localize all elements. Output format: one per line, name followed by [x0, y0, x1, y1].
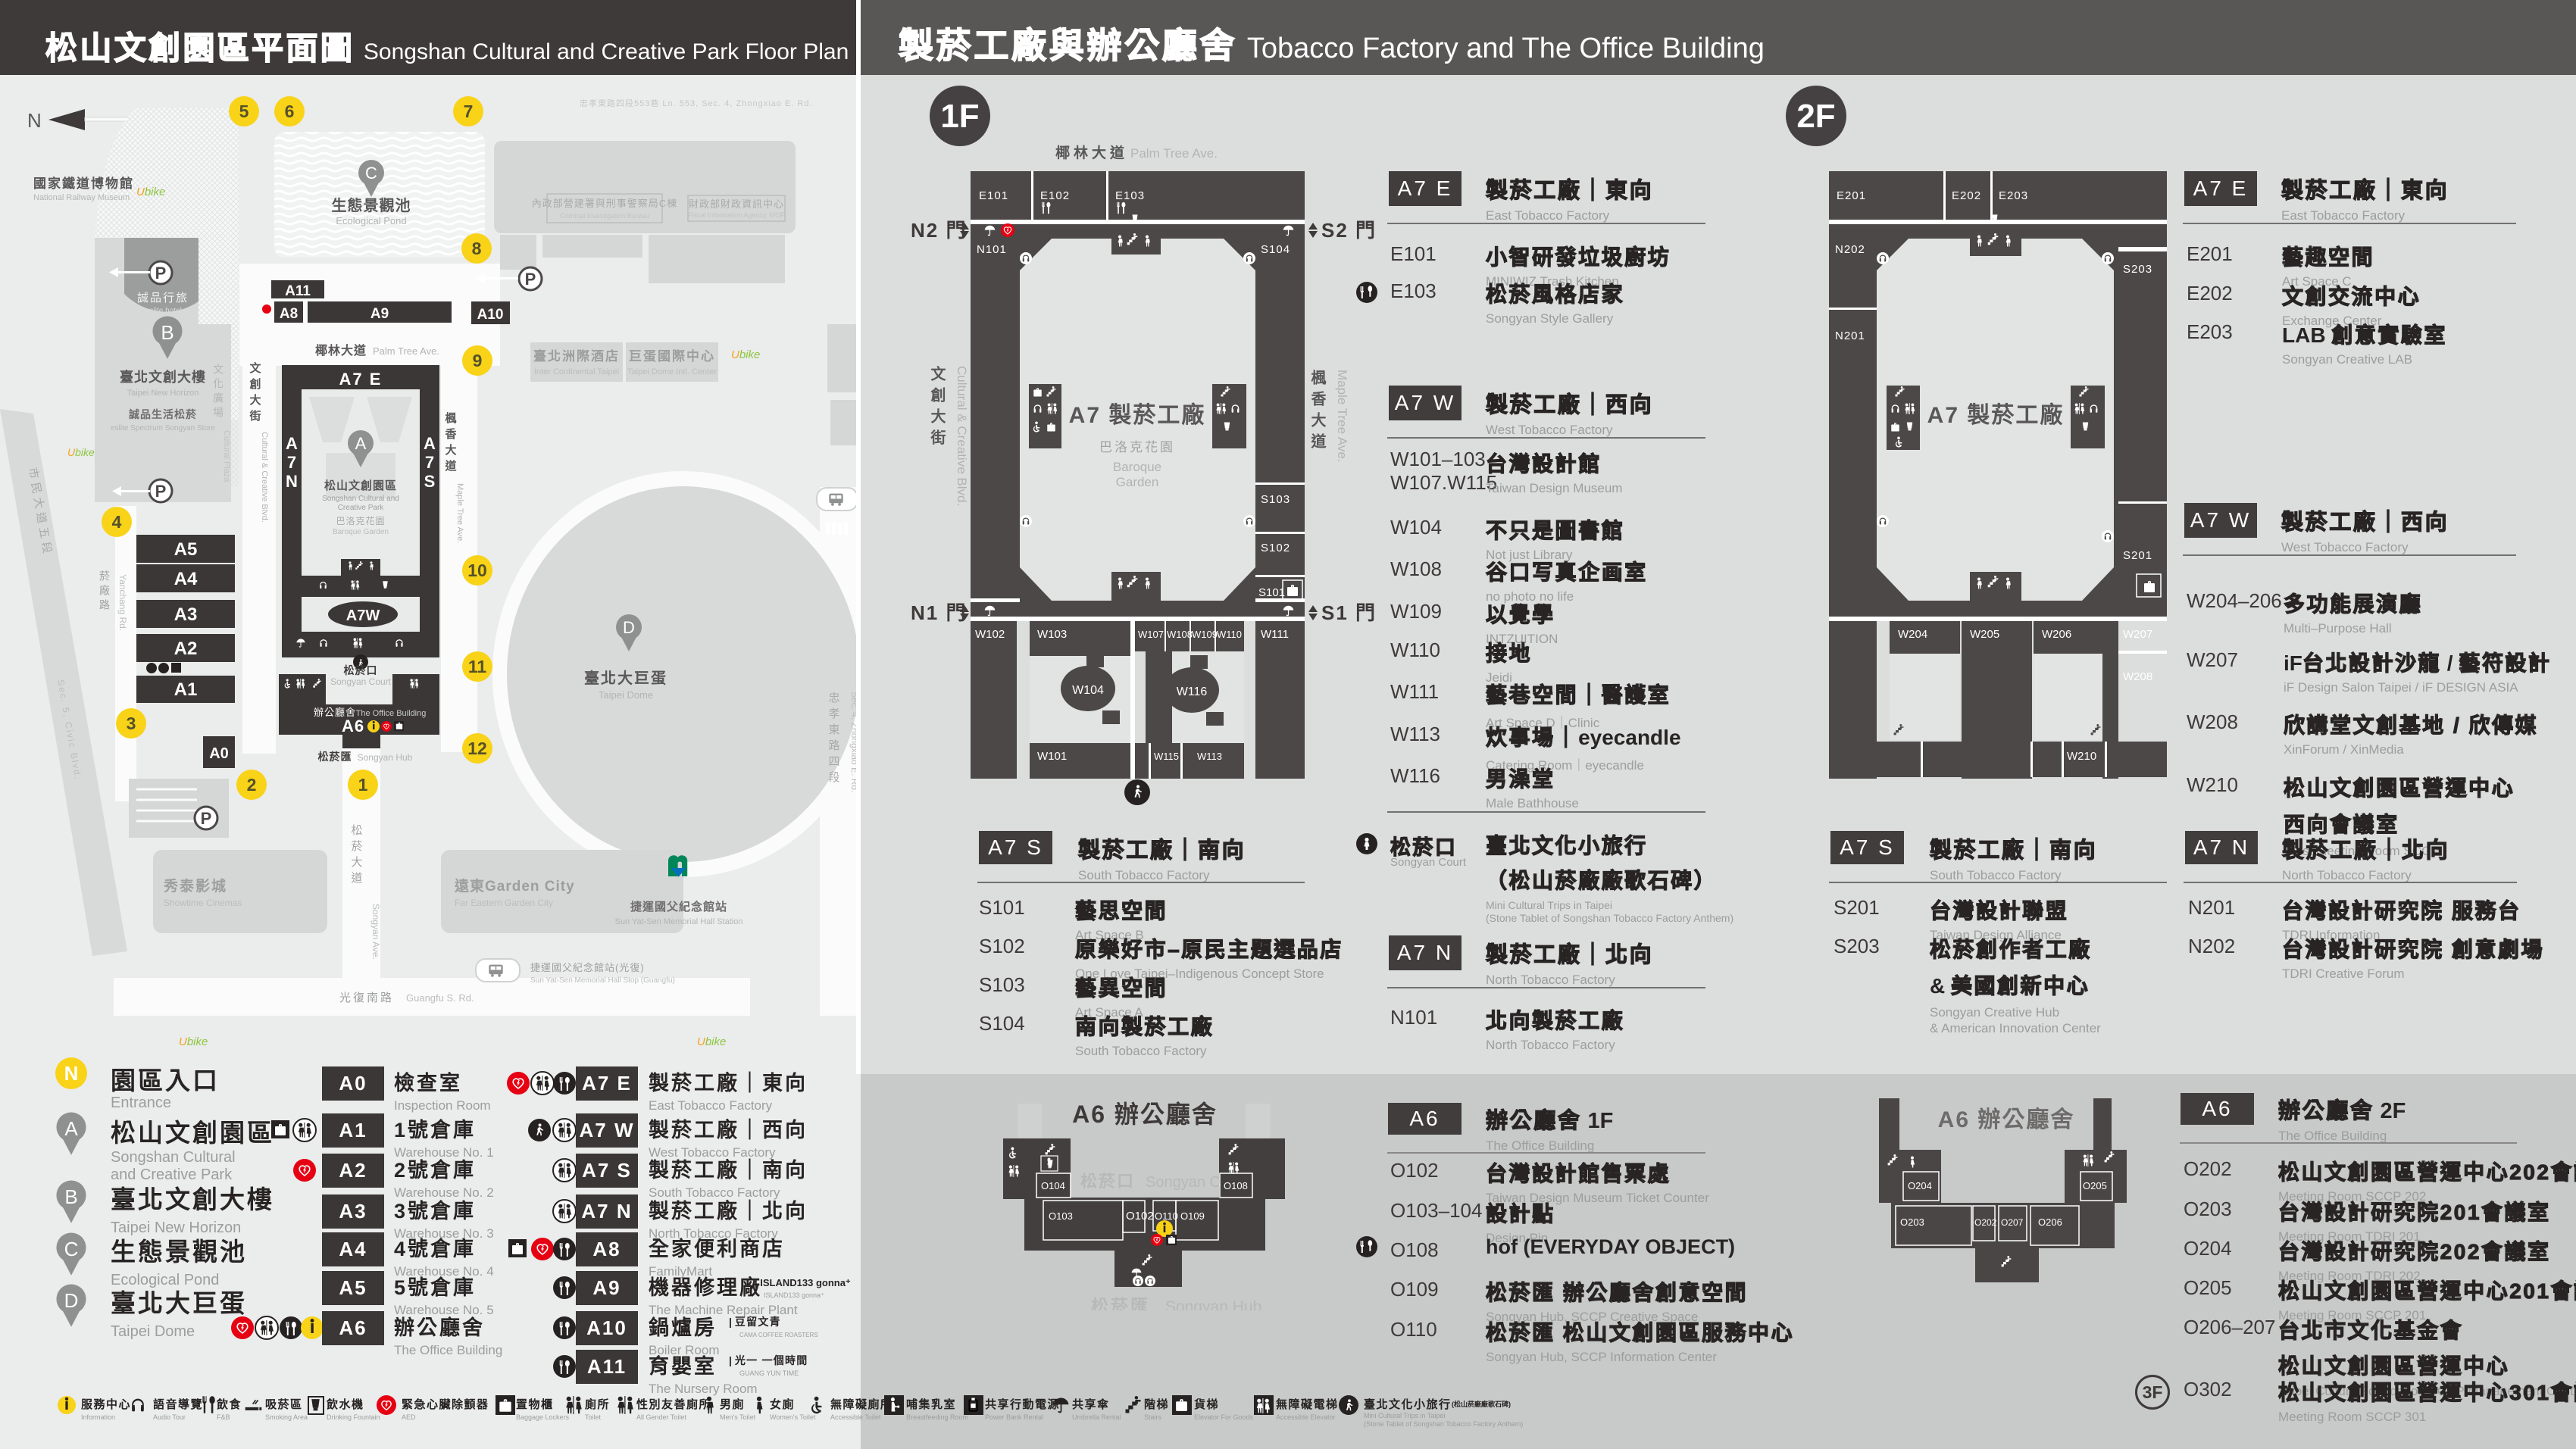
svg-text:O108: O108 — [1224, 1180, 1248, 1191]
svg-text:O109: O109 — [1180, 1210, 1205, 1222]
svg-text:W101: W101 — [1037, 750, 1067, 763]
svg-text:All Gender Toilet: All Gender Toilet — [636, 1413, 686, 1421]
svg-text:(Stone Tablet of Songshan Toba: (Stone Tablet of Songshan Tobacco Factor… — [1364, 1420, 1523, 1428]
svg-text:製菸工廠｜西向: 製菸工廠｜西向 — [649, 1118, 808, 1141]
svg-text:Umbrella Rental: Umbrella Rental — [1072, 1413, 1121, 1421]
svg-text:S101: S101 — [1258, 586, 1285, 599]
svg-text:S103: S103 — [1261, 493, 1290, 506]
svg-text:無障礙廁所: 無障礙廁所 — [830, 1397, 893, 1411]
svg-text:A8: A8 — [592, 1238, 621, 1260]
svg-text:E102: E102 — [1040, 189, 1070, 202]
svg-text:巴洛克花園: 巴洛克花園 — [1099, 440, 1175, 454]
svg-text:5號倉庫: 5號倉庫 — [394, 1276, 476, 1299]
svg-text:CAMA COFFEE ROASTERS: CAMA COFFEE ROASTERS — [739, 1332, 818, 1338]
svg-text:Baroque: Baroque — [1113, 460, 1161, 474]
svg-text:E202: E202 — [1952, 189, 1981, 202]
svg-text:W206: W206 — [2042, 628, 2071, 641]
svg-text:2號倉庫: 2號倉庫 — [394, 1158, 476, 1182]
svg-text:1號倉庫: 1號倉庫 — [394, 1118, 476, 1141]
svg-text:W107: W107 — [1138, 629, 1164, 640]
svg-text:O102: O102 — [1126, 1210, 1154, 1223]
svg-text:A2: A2 — [339, 1159, 367, 1182]
svg-text:| 光一 一個時間: | 光一 一個時間 — [729, 1354, 808, 1366]
svg-text:男廁: 男廁 — [720, 1397, 745, 1411]
svg-text:O205: O205 — [2083, 1180, 2107, 1191]
svg-text:松菸匯: 松菸匯 — [1091, 1296, 1150, 1310]
svg-text:South Tobacco Factory: South Tobacco Factory — [649, 1185, 780, 1200]
svg-text:W210: W210 — [2067, 750, 2096, 763]
svg-text:4號倉庫: 4號倉庫 — [394, 1237, 476, 1260]
svg-text:Information: Information — [81, 1413, 115, 1421]
svg-text:B: B — [64, 1185, 77, 1208]
svg-text:園區入口: 園區入口 — [111, 1066, 220, 1095]
svg-text:A0: A0 — [339, 1072, 367, 1095]
svg-text:松菸口: 松菸口 — [1080, 1172, 1135, 1191]
svg-text:廁所: 廁所 — [585, 1397, 610, 1411]
svg-text:Audio Tour: Audio Tour — [153, 1413, 186, 1421]
svg-text:W113: W113 — [1197, 751, 1222, 762]
svg-text:A4: A4 — [339, 1238, 367, 1260]
svg-text:A1: A1 — [339, 1119, 367, 1141]
svg-text:置物櫃: 置物櫃 — [516, 1397, 554, 1411]
svg-text:W108: W108 — [1167, 629, 1193, 640]
svg-text:Warehouse No. 2: Warehouse No. 2 — [394, 1185, 494, 1200]
svg-text:S2 門: S2 門 — [1321, 219, 1377, 242]
svg-text:E201: E201 — [1837, 189, 1866, 202]
svg-text:N1 門: N1 門 — [911, 601, 967, 624]
svg-text:C: C — [64, 1238, 79, 1260]
svg-text:臺北文創大樓: 臺北文創大樓 — [111, 1185, 274, 1213]
svg-text:Accessible Toilet: Accessible Toilet — [830, 1413, 881, 1421]
svg-text:哺集乳室: 哺集乳室 — [906, 1397, 956, 1411]
svg-text:吸菸區: 吸菸區 — [265, 1397, 303, 1411]
svg-text:ISLAND133 gonna⁺: ISLAND133 gonna⁺ — [764, 1291, 824, 1299]
svg-text:A9: A9 — [592, 1276, 621, 1299]
svg-text:S102: S102 — [1261, 542, 1290, 554]
svg-text:(松山菸廠廠歌石碑): (松山菸廠廠歌石碑) — [1452, 1400, 1511, 1408]
svg-text:Ecological Pond: Ecological Pond — [111, 1272, 219, 1288]
svg-text:West Tobacco Factory: West Tobacco Factory — [649, 1145, 776, 1160]
svg-text:S1 門: S1 門 — [1321, 601, 1377, 624]
svg-text:W204: W204 — [1898, 628, 1927, 641]
svg-text:鍋爐房: 鍋爐房 — [649, 1316, 717, 1339]
svg-text:O207: O207 — [2001, 1217, 2024, 1228]
svg-text:S201: S201 — [2123, 549, 2152, 562]
svg-text:Songshan Cultural: Songshan Cultural — [111, 1149, 236, 1166]
svg-text:飲食: 飲食 — [216, 1397, 242, 1411]
svg-text:全家便利商店: 全家便利商店 — [649, 1237, 785, 1260]
svg-text:W115: W115 — [1154, 751, 1179, 762]
svg-text:Entrance: Entrance — [111, 1095, 171, 1111]
svg-text:Smoking Area: Smoking Area — [265, 1413, 308, 1421]
svg-text:臺北文化小旅行: 臺北文化小旅行 — [1364, 1397, 1452, 1411]
svg-text:Power Bank Rental: Power Bank Rental — [985, 1413, 1043, 1421]
svg-text:A7 製菸工廠: A7 製菸工廠 — [1069, 402, 1206, 428]
svg-text:W109: W109 — [1192, 629, 1218, 640]
svg-text:機器修理廠: 機器修理廠 — [649, 1276, 762, 1299]
svg-text:椰林大道: 椰林大道 — [1055, 144, 1128, 161]
svg-text:N101: N101 — [977, 243, 1007, 256]
svg-text:辦公廳舍: 辦公廳舍 — [394, 1316, 485, 1339]
svg-text:O203: O203 — [1900, 1216, 1924, 1228]
svg-text:Inspection Room: Inspection Room — [394, 1098, 491, 1113]
svg-text:製菸工廠｜北向: 製菸工廠｜北向 — [649, 1199, 808, 1223]
svg-text:W103: W103 — [1037, 628, 1067, 641]
svg-text:O202: O202 — [1974, 1217, 1997, 1228]
svg-text:W110: W110 — [1217, 629, 1242, 640]
svg-text:D: D — [64, 1289, 79, 1312]
svg-text:A7 製菸工廠: A7 製菸工廠 — [1927, 402, 2065, 428]
svg-text:A6: A6 — [339, 1316, 367, 1339]
svg-text:松山文創園區: 松山文創園區 — [111, 1119, 274, 1147]
svg-text:Elevator For Goods: Elevator For Goods — [1194, 1413, 1254, 1421]
svg-text:Taipei Dome: Taipei Dome — [111, 1323, 195, 1340]
svg-text:A3: A3 — [339, 1200, 367, 1223]
svg-text:E203: E203 — [1999, 189, 2028, 202]
svg-text:The Office Building: The Office Building — [394, 1343, 502, 1357]
svg-text:A10: A10 — [586, 1316, 627, 1339]
svg-text:W116: W116 — [1177, 685, 1208, 698]
svg-text:GUANG YUN TIME: GUANG YUN TIME — [739, 1369, 799, 1377]
svg-text:Cultural & Creative Blvd.: Cultural & Creative Blvd. — [955, 366, 969, 506]
svg-text:O103: O103 — [1049, 1210, 1073, 1222]
svg-text:貨梯: 貨梯 — [1194, 1397, 1219, 1411]
svg-text:A6 辦公廳舍: A6 辦公廳舍 — [1938, 1107, 2075, 1132]
svg-text:E103: E103 — [1115, 189, 1145, 202]
svg-text:F&B: F&B — [217, 1413, 230, 1421]
svg-text:3號倉庫: 3號倉庫 — [394, 1199, 476, 1223]
svg-text:無障礙電梯: 無障礙電梯 — [1276, 1397, 1339, 1411]
svg-text:Warehouse No. 5: Warehouse No. 5 — [394, 1303, 494, 1317]
svg-text:W102: W102 — [975, 628, 1005, 641]
svg-text:S104: S104 — [1261, 243, 1290, 256]
svg-text:緊急心臟除顫器: 緊急心臟除顫器 — [402, 1397, 489, 1411]
svg-text:E101: E101 — [979, 189, 1008, 202]
svg-text:Taipei New Horizon: Taipei New Horizon — [111, 1219, 241, 1236]
svg-text:A6 辦公廳舍: A6 辦公廳舍 — [1072, 1101, 1218, 1128]
svg-text:檢查室: 檢查室 — [394, 1071, 462, 1095]
svg-text:共享行動電源: 共享行動電源 — [985, 1397, 1060, 1411]
svg-text:Maple Tree Ave.: Maple Tree Ave. — [1335, 370, 1349, 463]
svg-text:W111: W111 — [1261, 628, 1289, 641]
svg-text:生態景觀池: 生態景觀池 — [111, 1238, 247, 1266]
svg-text:Women's Toilet: Women's Toilet — [770, 1413, 816, 1421]
svg-text:Songyan Hub: Songyan Hub — [1165, 1298, 1261, 1310]
svg-text:育嬰室: 育嬰室 — [649, 1354, 717, 1378]
svg-text:文創大街: 文創大街 — [928, 365, 946, 451]
svg-text:語音導覽: 語音導覽 — [153, 1397, 203, 1411]
svg-text:Palm Tree Ave.: Palm Tree Ave. — [1130, 146, 1218, 161]
svg-text:A7 N: A7 N — [581, 1200, 632, 1223]
svg-text:臺北大巨蛋: 臺北大巨蛋 — [111, 1289, 247, 1317]
svg-text:A7 S: A7 S — [582, 1159, 632, 1182]
svg-text:1F: 1F — [940, 98, 979, 135]
svg-text:服務中心: 服務中心 — [81, 1397, 131, 1411]
svg-text:階梯: 階梯 — [1144, 1397, 1169, 1411]
svg-text:O206: O206 — [2038, 1216, 2062, 1228]
svg-text:共享傘: 共享傘 — [1072, 1397, 1110, 1411]
svg-text:| 豆留文青: | 豆留文青 — [729, 1316, 781, 1328]
svg-text:W205: W205 — [1970, 628, 1999, 641]
svg-text:性別友善廁所: 性別友善廁所 — [636, 1397, 711, 1411]
svg-text:製菸工廠｜南向: 製菸工廠｜南向 — [649, 1158, 808, 1182]
svg-text:Warehouse No. 1: Warehouse No. 1 — [394, 1145, 494, 1160]
svg-text:2F: 2F — [1796, 98, 1835, 135]
svg-text:A5: A5 — [339, 1276, 367, 1299]
svg-text:A: A — [64, 1117, 78, 1140]
svg-text:W104: W104 — [1072, 684, 1104, 697]
svg-text:製菸工廠｜東向: 製菸工廠｜東向 — [649, 1071, 808, 1095]
svg-text:A7 E: A7 E — [582, 1072, 632, 1095]
svg-text:N202: N202 — [1835, 243, 1865, 256]
svg-text:Accessible Elevator: Accessible Elevator — [1276, 1413, 1336, 1421]
svg-text:Baggage Lockers: Baggage Lockers — [516, 1413, 570, 1421]
svg-text:| ISLAND133 gonna⁺: | ISLAND133 gonna⁺ — [755, 1277, 851, 1288]
svg-text:AED: AED — [402, 1413, 416, 1421]
svg-text:and Creative Park: and Creative Park — [111, 1166, 233, 1183]
svg-text:女廁: 女廁 — [770, 1397, 795, 1411]
svg-text:N: N — [64, 1062, 79, 1085]
svg-text:飲水機: 飲水機 — [326, 1397, 364, 1411]
svg-text:S203: S203 — [2123, 263, 2152, 276]
svg-text:楓香大道: 楓香大道 — [1308, 369, 1327, 454]
svg-text:Breastfeeding Room: Breastfeeding Room — [906, 1413, 968, 1421]
svg-text:O110: O110 — [1155, 1210, 1178, 1222]
svg-text:W208: W208 — [2123, 670, 2152, 683]
svg-text:Stairs: Stairs — [1144, 1413, 1162, 1421]
svg-text:N2 門: N2 門 — [911, 219, 967, 242]
svg-text:A11: A11 — [587, 1355, 627, 1378]
svg-text:Garden: Garden — [1116, 475, 1159, 489]
svg-text:N201: N201 — [1835, 329, 1865, 342]
svg-text:Mini Cultural Trips in Taipei: Mini Cultural Trips in Taipei — [1364, 1412, 1445, 1419]
svg-text:W207: W207 — [2123, 628, 2152, 641]
svg-text:O104: O104 — [1041, 1180, 1065, 1191]
svg-text:Men's Toilet: Men's Toilet — [720, 1413, 756, 1421]
svg-text:Drinking Fountain: Drinking Fountain — [327, 1413, 380, 1421]
svg-text:A7 W: A7 W — [580, 1119, 635, 1141]
svg-text:East Tobacco Factory: East Tobacco Factory — [649, 1098, 773, 1113]
svg-text:O204: O204 — [1908, 1180, 1932, 1191]
svg-text:Toilet: Toilet — [585, 1413, 602, 1421]
